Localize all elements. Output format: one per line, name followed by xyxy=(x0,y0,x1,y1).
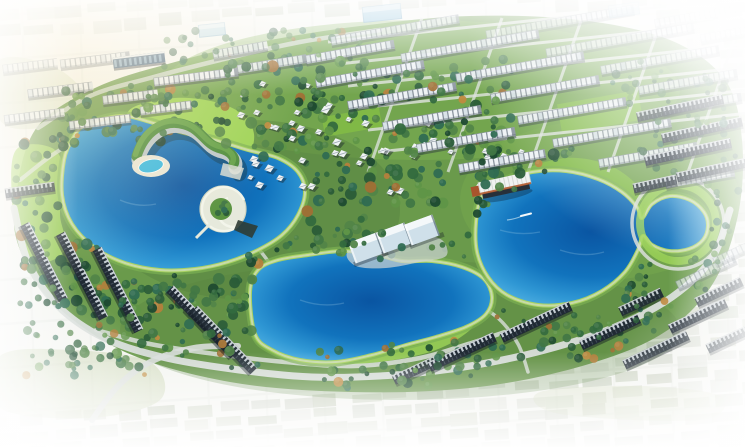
aerial-masterplan-render xyxy=(0,0,745,447)
render-viewport xyxy=(0,0,745,447)
factory-building xyxy=(198,23,225,38)
